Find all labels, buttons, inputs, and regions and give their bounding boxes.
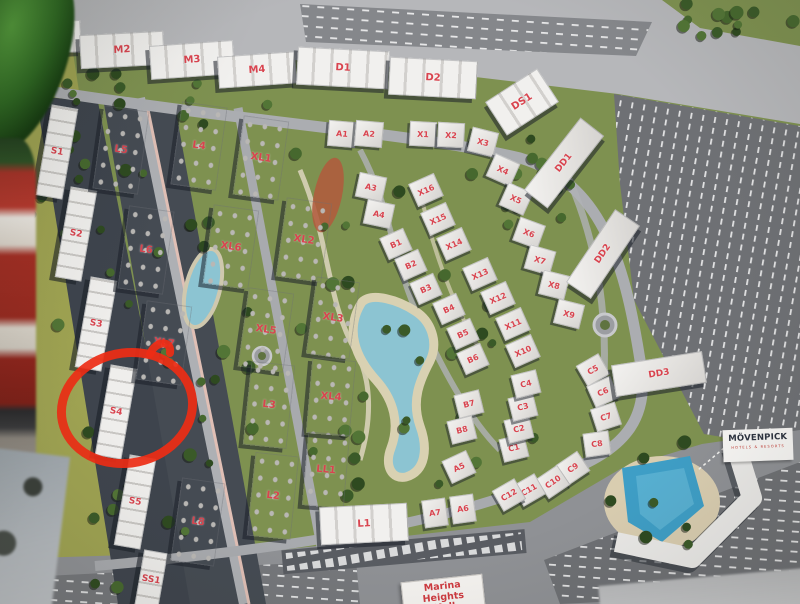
- building-b8: B8: [446, 415, 477, 445]
- building-label: X4: [496, 164, 510, 177]
- building-s4: S4: [95, 364, 138, 459]
- building-l4: L4: [170, 101, 227, 191]
- building-xl7: XL7: [136, 300, 193, 386]
- building-xl3: XL3: [306, 276, 360, 359]
- building-label: B8: [455, 424, 469, 436]
- building-label: A1: [336, 129, 349, 139]
- building-label: XL6: [220, 240, 242, 254]
- building-label: XL5: [255, 323, 277, 337]
- building-label: A2: [363, 129, 376, 139]
- building-label: X5: [509, 193, 523, 206]
- building-label: X2: [445, 130, 457, 140]
- building-label: M4: [248, 64, 266, 76]
- building-label: XL2: [293, 233, 315, 247]
- building-l5: L5: [92, 105, 149, 195]
- building-ds1: DS1: [485, 68, 559, 135]
- building-b7: B7: [453, 389, 484, 419]
- building-label: XL4: [320, 391, 342, 404]
- building-label: L6: [139, 244, 154, 257]
- building-label: B3: [419, 283, 433, 296]
- foreground-plush-toy: [0, 138, 36, 483]
- building-label: X1: [417, 129, 429, 139]
- building-label: C8: [591, 439, 604, 450]
- building-label: DD3: [648, 367, 671, 380]
- building-x1: X1: [409, 121, 437, 147]
- building-xl4: XL4: [306, 357, 356, 437]
- building-label: L2: [266, 490, 280, 502]
- building-dd3: DD3: [611, 351, 707, 397]
- building-label: C2: [512, 423, 525, 434]
- building-label: S4: [109, 406, 123, 418]
- building-label: X13: [470, 266, 489, 281]
- building-label: D1: [335, 62, 351, 74]
- building-label: XL3: [322, 311, 344, 325]
- building-x8: X8: [538, 270, 570, 301]
- building-label: X12: [488, 290, 507, 305]
- movenpick-logo-name: MÖVENPICK: [723, 433, 793, 444]
- building-l8: L8: [170, 477, 225, 566]
- building-label: X16: [416, 182, 435, 197]
- building-label: C7: [599, 411, 613, 423]
- building-a5: A5: [441, 450, 476, 484]
- building-label: X3: [476, 136, 490, 148]
- building-label: M3: [183, 54, 201, 66]
- movenpick-logo-subtitle: HOTELS & RESORTS: [723, 443, 793, 449]
- building-label: A5: [452, 460, 466, 473]
- building-label: A7: [429, 508, 442, 519]
- building-label: C10: [543, 474, 562, 491]
- building-xl2: XL2: [276, 197, 333, 283]
- building-label: B5: [456, 328, 470, 341]
- movenpick-logo: MÖVENPICK HOTELS & RESORTS: [722, 428, 793, 462]
- building-label: X7: [533, 254, 547, 266]
- building-x16: X16: [408, 173, 444, 207]
- building-label: XL1: [250, 151, 272, 165]
- building-d2: D2: [388, 57, 478, 100]
- building-label: C5: [586, 363, 600, 377]
- building-label: L5: [114, 144, 129, 157]
- buildings-layer: M1M2M3M4D1D2DS1S1S2S3S4S5SS1L5L4XL1L6XL6…: [0, 0, 800, 604]
- building-label: C3: [516, 401, 529, 412]
- building-label: L1: [357, 518, 371, 530]
- building-ss1: SS1: [134, 549, 168, 604]
- building-label: S5: [128, 496, 142, 508]
- building-xl6: XL6: [203, 204, 260, 290]
- building-c8: C8: [582, 430, 611, 457]
- building-s5: S5: [114, 454, 157, 549]
- building-label: DS1: [510, 91, 535, 112]
- building-dd1: DD1: [524, 118, 604, 209]
- building-label: X14: [444, 236, 463, 251]
- building-a3: A3: [355, 172, 388, 202]
- building-a2: A2: [354, 120, 384, 148]
- building-l6: L6: [117, 205, 174, 295]
- building-x3: X3: [467, 127, 499, 158]
- building-label: X15: [428, 211, 447, 226]
- building-label: X10: [513, 343, 532, 358]
- building-a4: A4: [363, 199, 396, 229]
- building-label: A4: [372, 208, 385, 219]
- building-label: C6: [596, 386, 610, 399]
- building-label: B1: [389, 238, 403, 251]
- building-label: DD2: [593, 242, 613, 265]
- building-label: C4: [519, 378, 532, 389]
- building-a7: A7: [421, 497, 449, 528]
- building-x9: X9: [553, 299, 585, 330]
- building-label: B6: [466, 353, 480, 366]
- building-xl1: XL1: [233, 115, 290, 201]
- building-label: X6: [522, 227, 536, 239]
- building-l2: L2: [247, 452, 300, 540]
- building-label: A6: [457, 504, 470, 515]
- building-dd2: DD2: [566, 209, 640, 299]
- building-label: C1: [507, 442, 520, 453]
- building-label: XL7: [153, 336, 175, 350]
- building-label: B4: [442, 303, 456, 316]
- building-label: L4: [192, 140, 207, 153]
- building-label: C12: [499, 487, 518, 503]
- building-label: S3: [89, 318, 103, 330]
- building-b4: B4: [432, 293, 466, 326]
- building-label: S2: [69, 228, 83, 240]
- building-label: DD1: [554, 152, 575, 175]
- building-label: B2: [404, 259, 418, 272]
- building-label: SS1: [141, 573, 161, 586]
- building-x12: X12: [480, 281, 516, 315]
- building-label: LL1: [316, 464, 337, 477]
- building-label: A3: [364, 181, 377, 192]
- site-map-photo: M1M2M3M4D1D2DS1S1S2S3S4S5SS1L5L4XL1L6XL6…: [0, 0, 800, 604]
- building-a6: A6: [449, 493, 477, 524]
- building-label: B7: [462, 398, 476, 410]
- building-label: M2: [113, 44, 130, 56]
- building-a1: A1: [327, 120, 357, 148]
- building-label: X9: [562, 308, 576, 320]
- building-x10: X10: [505, 334, 541, 368]
- building-l1: L1: [319, 503, 409, 546]
- building-ll1: LL1: [302, 431, 350, 508]
- building-c4: C4: [510, 369, 541, 399]
- building-label: X11: [503, 316, 522, 331]
- building-x4: X4: [486, 153, 521, 187]
- building-label: X8: [547, 279, 561, 291]
- building-m4: M4: [217, 51, 297, 88]
- building-x14: X14: [436, 227, 472, 261]
- building-s3: S3: [75, 276, 118, 371]
- building-label: L3: [262, 399, 276, 411]
- building-label: D2: [425, 72, 441, 84]
- building-x6: X6: [512, 217, 546, 250]
- building-label: S1: [50, 146, 64, 158]
- building-x2: X2: [437, 122, 465, 148]
- building-d1: D1: [296, 47, 390, 90]
- building-l3: L3: [243, 361, 296, 449]
- building-label: L8: [191, 516, 206, 529]
- building-s2: S2: [55, 186, 98, 281]
- building-xl5: XL5: [238, 287, 295, 373]
- building-label: C9: [566, 461, 581, 475]
